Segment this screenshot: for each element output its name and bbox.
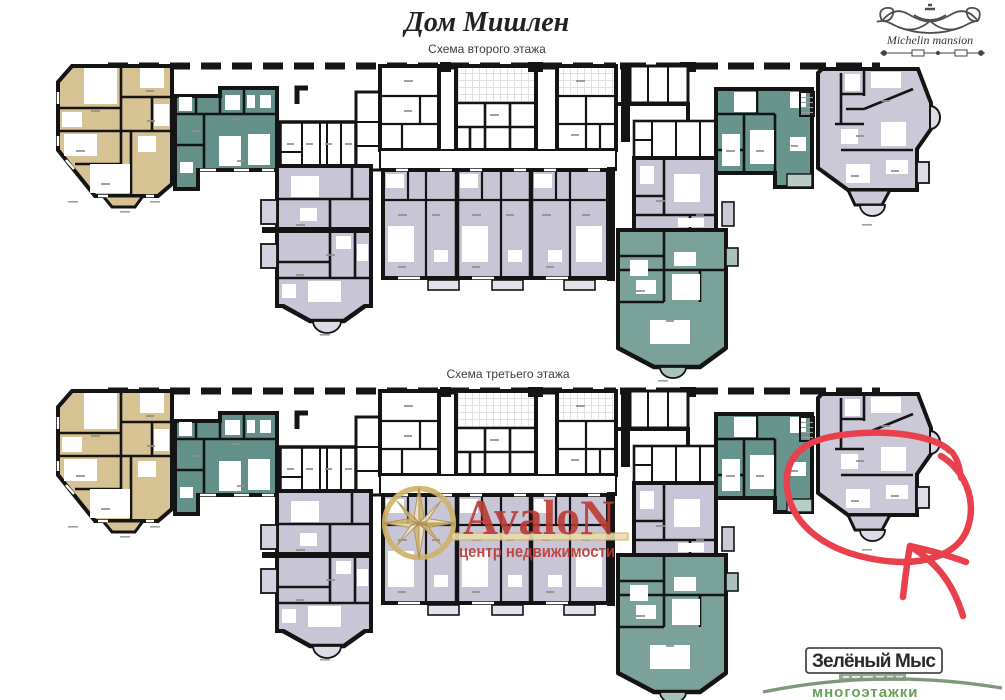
- svg-text:Michelin mansion: Michelin mansion: [886, 33, 973, 47]
- svg-text:многоэтажки: многоэтажки: [812, 684, 918, 700]
- svg-text:Схема второго этажа: Схема второго этажа: [428, 42, 546, 56]
- svg-text:Дом Мишлен: Дом Мишлен: [402, 7, 569, 38]
- svg-text:Схема третьего этажа: Схема третьего этажа: [446, 367, 569, 381]
- svg-text:Зелёный Мыс: Зелёный Мыс: [812, 651, 936, 672]
- svg-text:AvaloN: AvaloN: [463, 489, 615, 545]
- svg-text:центр недвижимости: центр недвижимости: [459, 543, 615, 561]
